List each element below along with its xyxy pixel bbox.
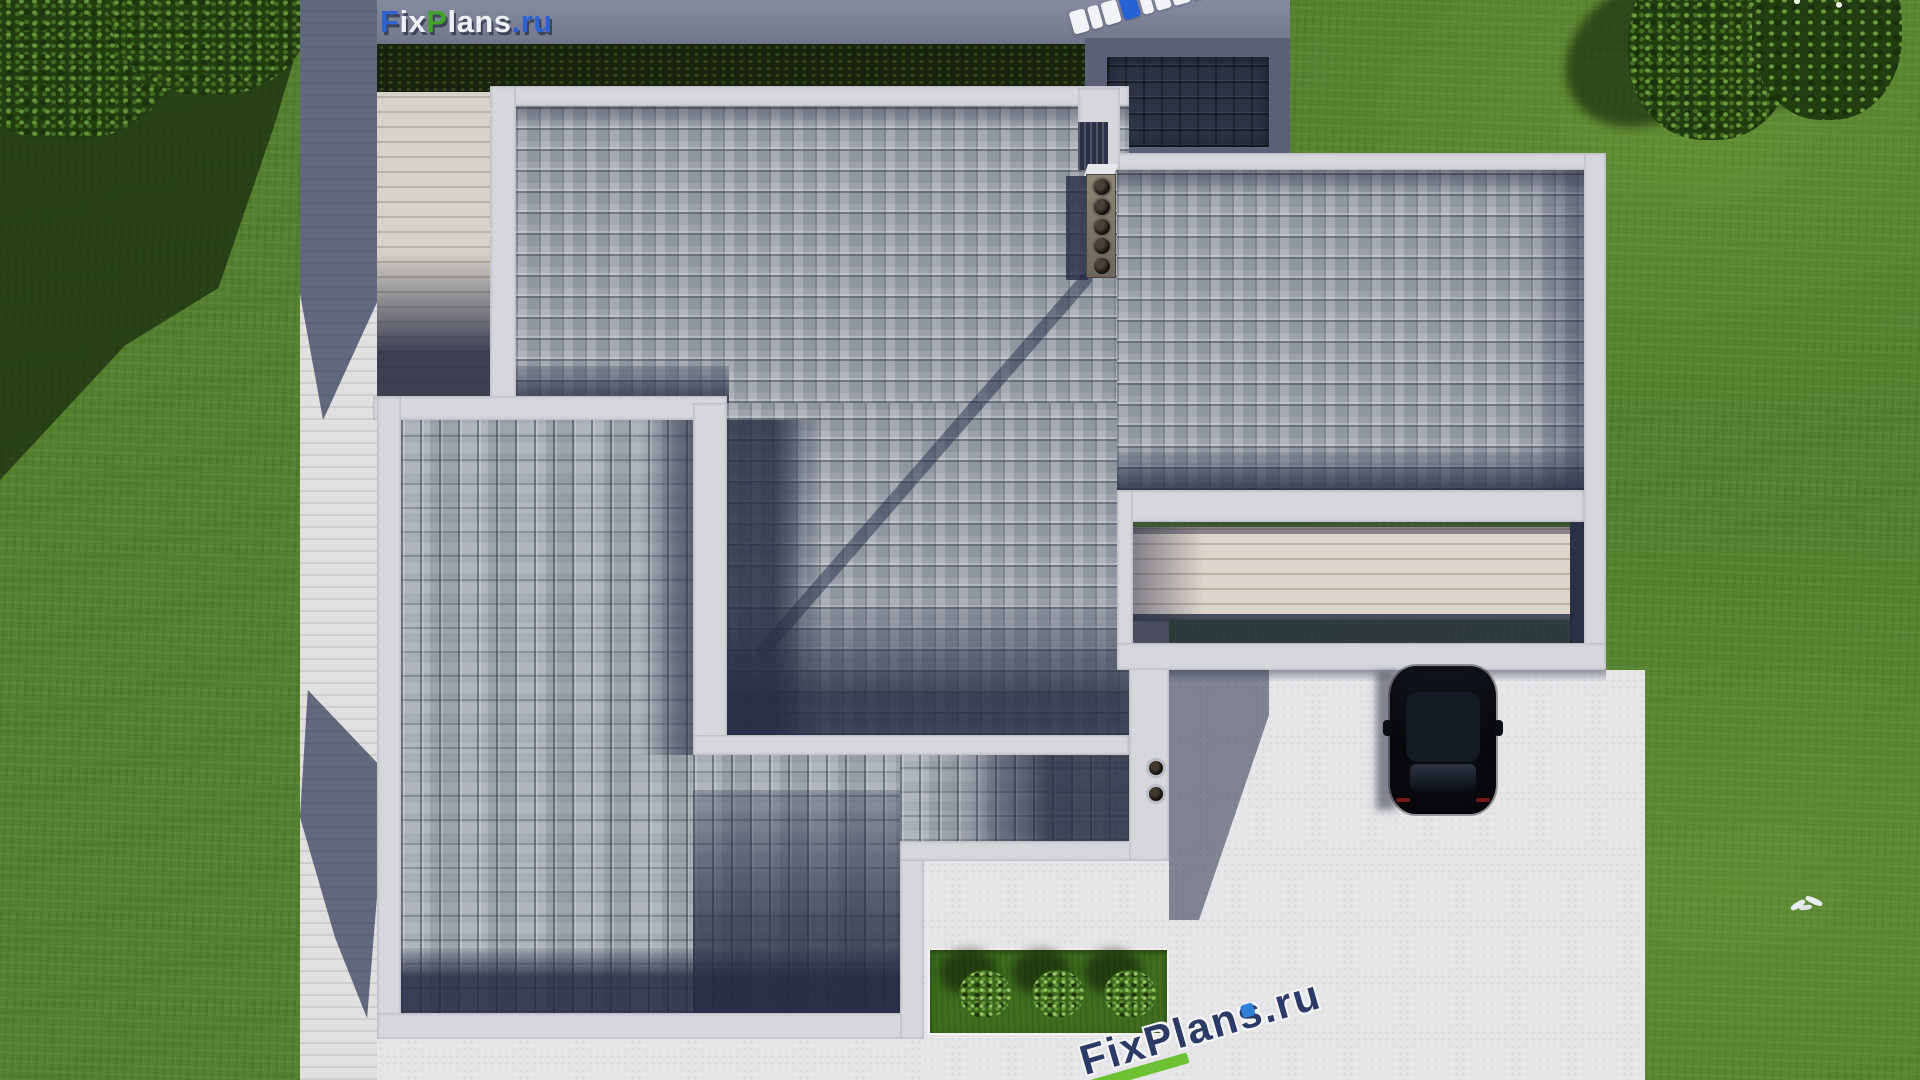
chimney-flue-4: [1092, 236, 1112, 256]
wood-deck-shadow: [377, 250, 490, 398]
parapet-wing-top: [1117, 153, 1606, 170]
bird: [1790, 892, 1826, 920]
roof-vent-2: [1146, 784, 1166, 804]
parapet-lower-right: [900, 841, 924, 1039]
car-roof: [1406, 692, 1480, 762]
logo-part-lans: lans: [447, 4, 511, 39]
fixplans-logo: FixPlans.ru: [380, 4, 553, 40]
aerial-render-scene: FixPlans.ru FixPlans.ru FixPlans.ru: [0, 0, 1920, 1080]
parapet-inner-vertical: [693, 403, 727, 755]
logo-part-f: F: [380, 4, 399, 39]
roof-shadow-lower-right-col: [638, 420, 693, 755]
watermark-top: FixPlans.ru: [1068, 0, 1258, 26]
watermark-top-letter-4: P: [1118, 0, 1141, 21]
roof-upper-shingles: [516, 102, 1129, 403]
roof-right-wing-shingles: [1117, 170, 1584, 490]
watermark-top-letter-7: n: [1169, 0, 1191, 6]
parapet-step: [373, 396, 727, 420]
parapet-wing-right: [1584, 153, 1606, 670]
car-taillight-left: [1396, 798, 1410, 802]
car-mirror-right: [1494, 720, 1503, 736]
pergola-right-shadow-strip: [1570, 522, 1584, 643]
chimney-shadow: [1066, 176, 1088, 280]
chimney-flue-2: [1092, 197, 1112, 217]
logo-part-ru: .ru: [512, 4, 553, 39]
pergola-left-shadow: [1133, 527, 1203, 620]
roof-shadow-wing-bottom: [1117, 452, 1584, 490]
roof-shadow-east-block: [946, 755, 1129, 841]
car-taillight-right: [1476, 798, 1490, 802]
roof-shadow-mid-block: [693, 790, 900, 1013]
parapet-corner-face: [1078, 122, 1108, 170]
chimney-flue-5: [1092, 256, 1112, 276]
watermark-bottom: FixPlans.ru: [1076, 1002, 1336, 1080]
roof-shadow-wing-right: [1528, 170, 1584, 490]
terrace-bottom-left: [377, 1039, 924, 1080]
roof-vent-1: [1146, 758, 1166, 778]
bird-body: [1799, 904, 1813, 911]
watermark-top-letter-6: a: [1151, 0, 1172, 11]
parapet-carport-band: [1117, 643, 1606, 670]
chimney: [1086, 174, 1116, 278]
parapet-pergola-top: [1117, 490, 1584, 522]
pergola-bottom-shadow: [1133, 614, 1572, 643]
logo-part-ix: ix: [399, 4, 426, 39]
car-windshield: [1410, 764, 1476, 790]
parapet-bottom: [377, 1013, 924, 1039]
roof-vents: [1144, 758, 1168, 808]
parapet-top: [490, 86, 1129, 106]
chimney-flue-3: [1092, 217, 1112, 237]
roof-shadow-wing-top: [1117, 170, 1584, 198]
logo-part-p: P: [426, 4, 447, 39]
watermark-top-letter-3: x: [1100, 0, 1121, 26]
parapet-ext-bottom: [693, 735, 1129, 755]
chimney-flue-1: [1092, 177, 1112, 197]
garden-bush-1: [959, 970, 1011, 1018]
parapet-left-lower: [377, 396, 401, 1039]
car: [1390, 666, 1496, 814]
car-mirror-left: [1383, 720, 1392, 736]
annex-roof-shingles: [1107, 57, 1269, 147]
parapet-left-upper: [490, 86, 516, 420]
